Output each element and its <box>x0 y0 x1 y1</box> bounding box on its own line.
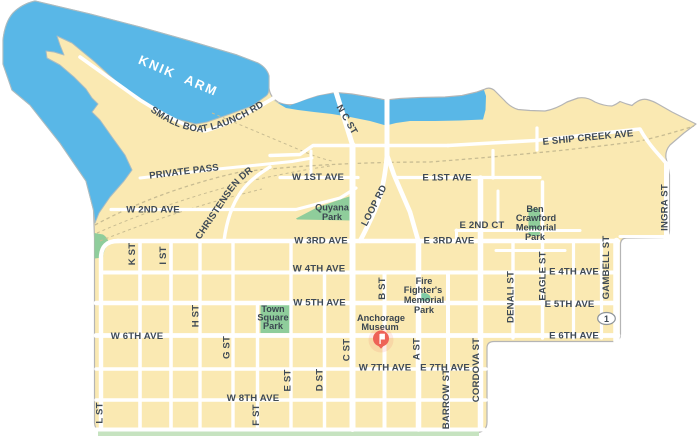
svg-text:GAMBELL ST: GAMBELL ST <box>601 236 612 300</box>
svg-text:Fighter's: Fighter's <box>404 285 442 295</box>
svg-text:E 3RD AVE: E 3RD AVE <box>424 236 475 247</box>
svg-text:DENALI ST: DENALI ST <box>506 271 517 323</box>
svg-text:W 7TH AVE: W 7TH AVE <box>359 363 412 374</box>
svg-text:BARROW ST: BARROW ST <box>441 369 452 430</box>
svg-text:Memorial: Memorial <box>404 295 444 305</box>
svg-text:Park: Park <box>263 321 284 331</box>
svg-text:H ST: H ST <box>191 305 202 327</box>
svg-text:A ST: A ST <box>412 338 423 360</box>
svg-text:D ST: D ST <box>315 369 326 391</box>
svg-text:W 1ST AVE: W 1ST AVE <box>292 172 344 183</box>
svg-text:E 5TH AVE: E 5TH AVE <box>545 299 595 310</box>
svg-text:W 8TH AVE: W 8TH AVE <box>227 393 280 404</box>
svg-text:E 4TH AVE: E 4TH AVE <box>549 267 599 278</box>
svg-text:Park: Park <box>525 232 546 242</box>
svg-text:F ST: F ST <box>251 404 262 425</box>
svg-text:Park: Park <box>414 305 435 315</box>
svg-text:CORDOVA ST: CORDOVA ST <box>471 338 482 402</box>
svg-text:EAGLE ST: EAGLE ST <box>538 251 549 300</box>
svg-text:E 2ND CT: E 2ND CT <box>460 220 505 231</box>
svg-text:INGRA ST: INGRA ST <box>660 184 671 231</box>
svg-text:B ST: B ST <box>377 277 388 299</box>
svg-text:L ST: L ST <box>95 402 106 423</box>
svg-text:E 1ST AVE: E 1ST AVE <box>422 173 472 184</box>
svg-text:1: 1 <box>604 314 609 324</box>
svg-text:Memorial: Memorial <box>516 223 556 233</box>
svg-text:Park: Park <box>322 212 343 222</box>
svg-text:I ST: I ST <box>158 246 169 264</box>
svg-text:G ST: G ST <box>222 336 233 359</box>
svg-text:W 2ND AVE: W 2ND AVE <box>126 205 180 216</box>
svg-text:C ST: C ST <box>342 339 353 361</box>
svg-text:W 4TH AVE: W 4TH AVE <box>293 264 346 275</box>
svg-text:Quyana: Quyana <box>315 203 350 213</box>
svg-text:W 5TH AVE: W 5TH AVE <box>293 298 346 309</box>
svg-text:W 3RD AVE: W 3RD AVE <box>294 236 348 247</box>
svg-text:W 6TH AVE: W 6TH AVE <box>111 331 164 342</box>
svg-text:K ST: K ST <box>127 243 138 265</box>
svg-text:E ST: E ST <box>283 370 294 392</box>
svg-text:E 6TH AVE: E 6TH AVE <box>549 331 599 342</box>
svg-text:Crawford: Crawford <box>516 213 556 223</box>
